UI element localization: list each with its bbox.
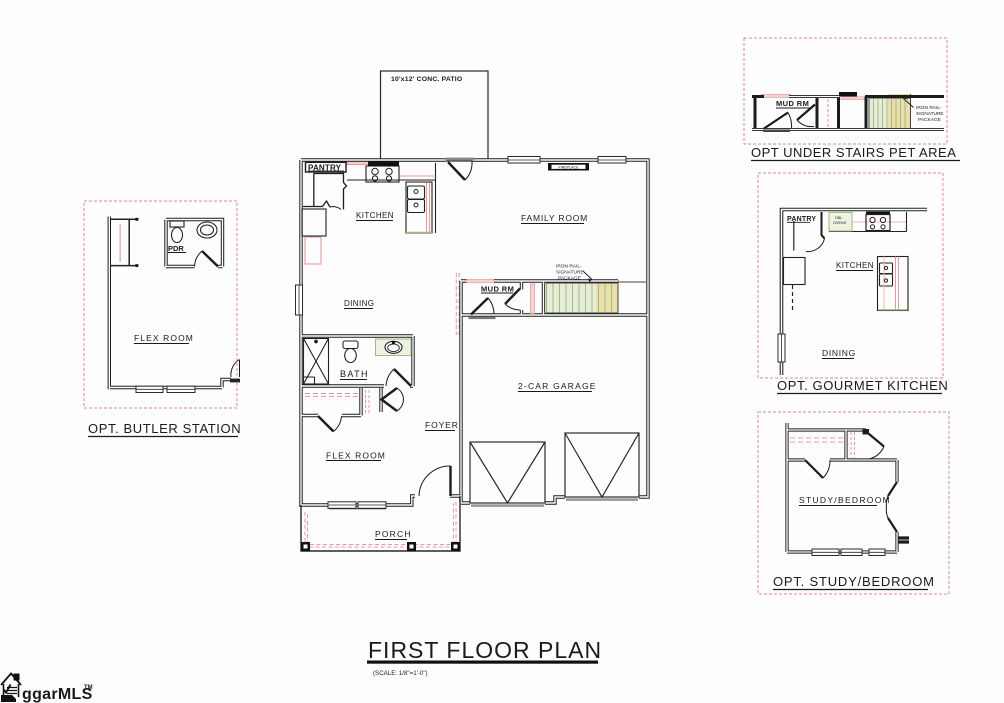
svg-text:STUDY/BEDROOM: STUDY/BEDROOM [799, 495, 891, 505]
svg-text:FLEX ROOM: FLEX ROOM [134, 333, 194, 343]
svg-text:ggarMLS: ggarMLS [22, 686, 93, 703]
svg-text:KITCHEN: KITCHEN [836, 261, 874, 270]
svg-text:MUD RM: MUD RM [776, 99, 809, 108]
svg-text:OPT. STUDY/BEDROOM: OPT. STUDY/BEDROOM [773, 574, 935, 589]
svg-text:10'x12' CONC. PATIO: 10'x12' CONC. PATIO [391, 76, 462, 83]
svg-text:PORCH: PORCH [375, 529, 412, 539]
svg-text:SIGNATURE: SIGNATURE [556, 270, 584, 276]
svg-text:PACKAGE: PACKAGE [918, 117, 941, 123]
svg-text:BATH: BATH [340, 369, 369, 379]
svg-text:PACKAGE: PACKAGE [558, 276, 581, 282]
svg-text:PDR: PDR [168, 244, 184, 253]
svg-text:2-CAR GARAGE: 2-CAR GARAGE [518, 381, 597, 391]
svg-text:FLEX ROOM: FLEX ROOM [326, 451, 386, 461]
svg-text:FIREPLACE: FIREPLACE [559, 165, 580, 169]
svg-text:DINING: DINING [822, 348, 856, 358]
svg-text:FOYER: FOYER [425, 420, 459, 430]
svg-text:TM: TM [84, 685, 93, 691]
svg-text:OVENS: OVENS [833, 221, 847, 225]
svg-text:DBL: DBL [835, 216, 842, 220]
svg-text:FIRST FLOOR PLAN: FIRST FLOOR PLAN [368, 637, 602, 663]
svg-text:DINING: DINING [344, 299, 374, 308]
svg-text:OPT. GOURMET KITCHEN: OPT. GOURMET KITCHEN [777, 378, 948, 393]
svg-text:IRON RAIL-: IRON RAIL- [556, 264, 582, 270]
svg-text:MUD RM: MUD RM [481, 285, 514, 294]
svg-text:KITCHEN: KITCHEN [356, 211, 394, 220]
svg-text:SIGNATURE: SIGNATURE [916, 111, 944, 117]
svg-text:FAMILY ROOM: FAMILY ROOM [521, 213, 588, 223]
svg-text:IRON RAIL-: IRON RAIL- [916, 105, 942, 111]
svg-text:(SCALE: 1/8"=1'-0"): (SCALE: 1/8"=1'-0") [373, 670, 428, 677]
svg-text:RANGE: RANGE [371, 162, 385, 166]
svg-text:OPT UNDER STAIRS PET AREA: OPT UNDER STAIRS PET AREA [751, 145, 956, 160]
svg-text:OPT. BUTLER STATION: OPT. BUTLER STATION [88, 421, 241, 436]
